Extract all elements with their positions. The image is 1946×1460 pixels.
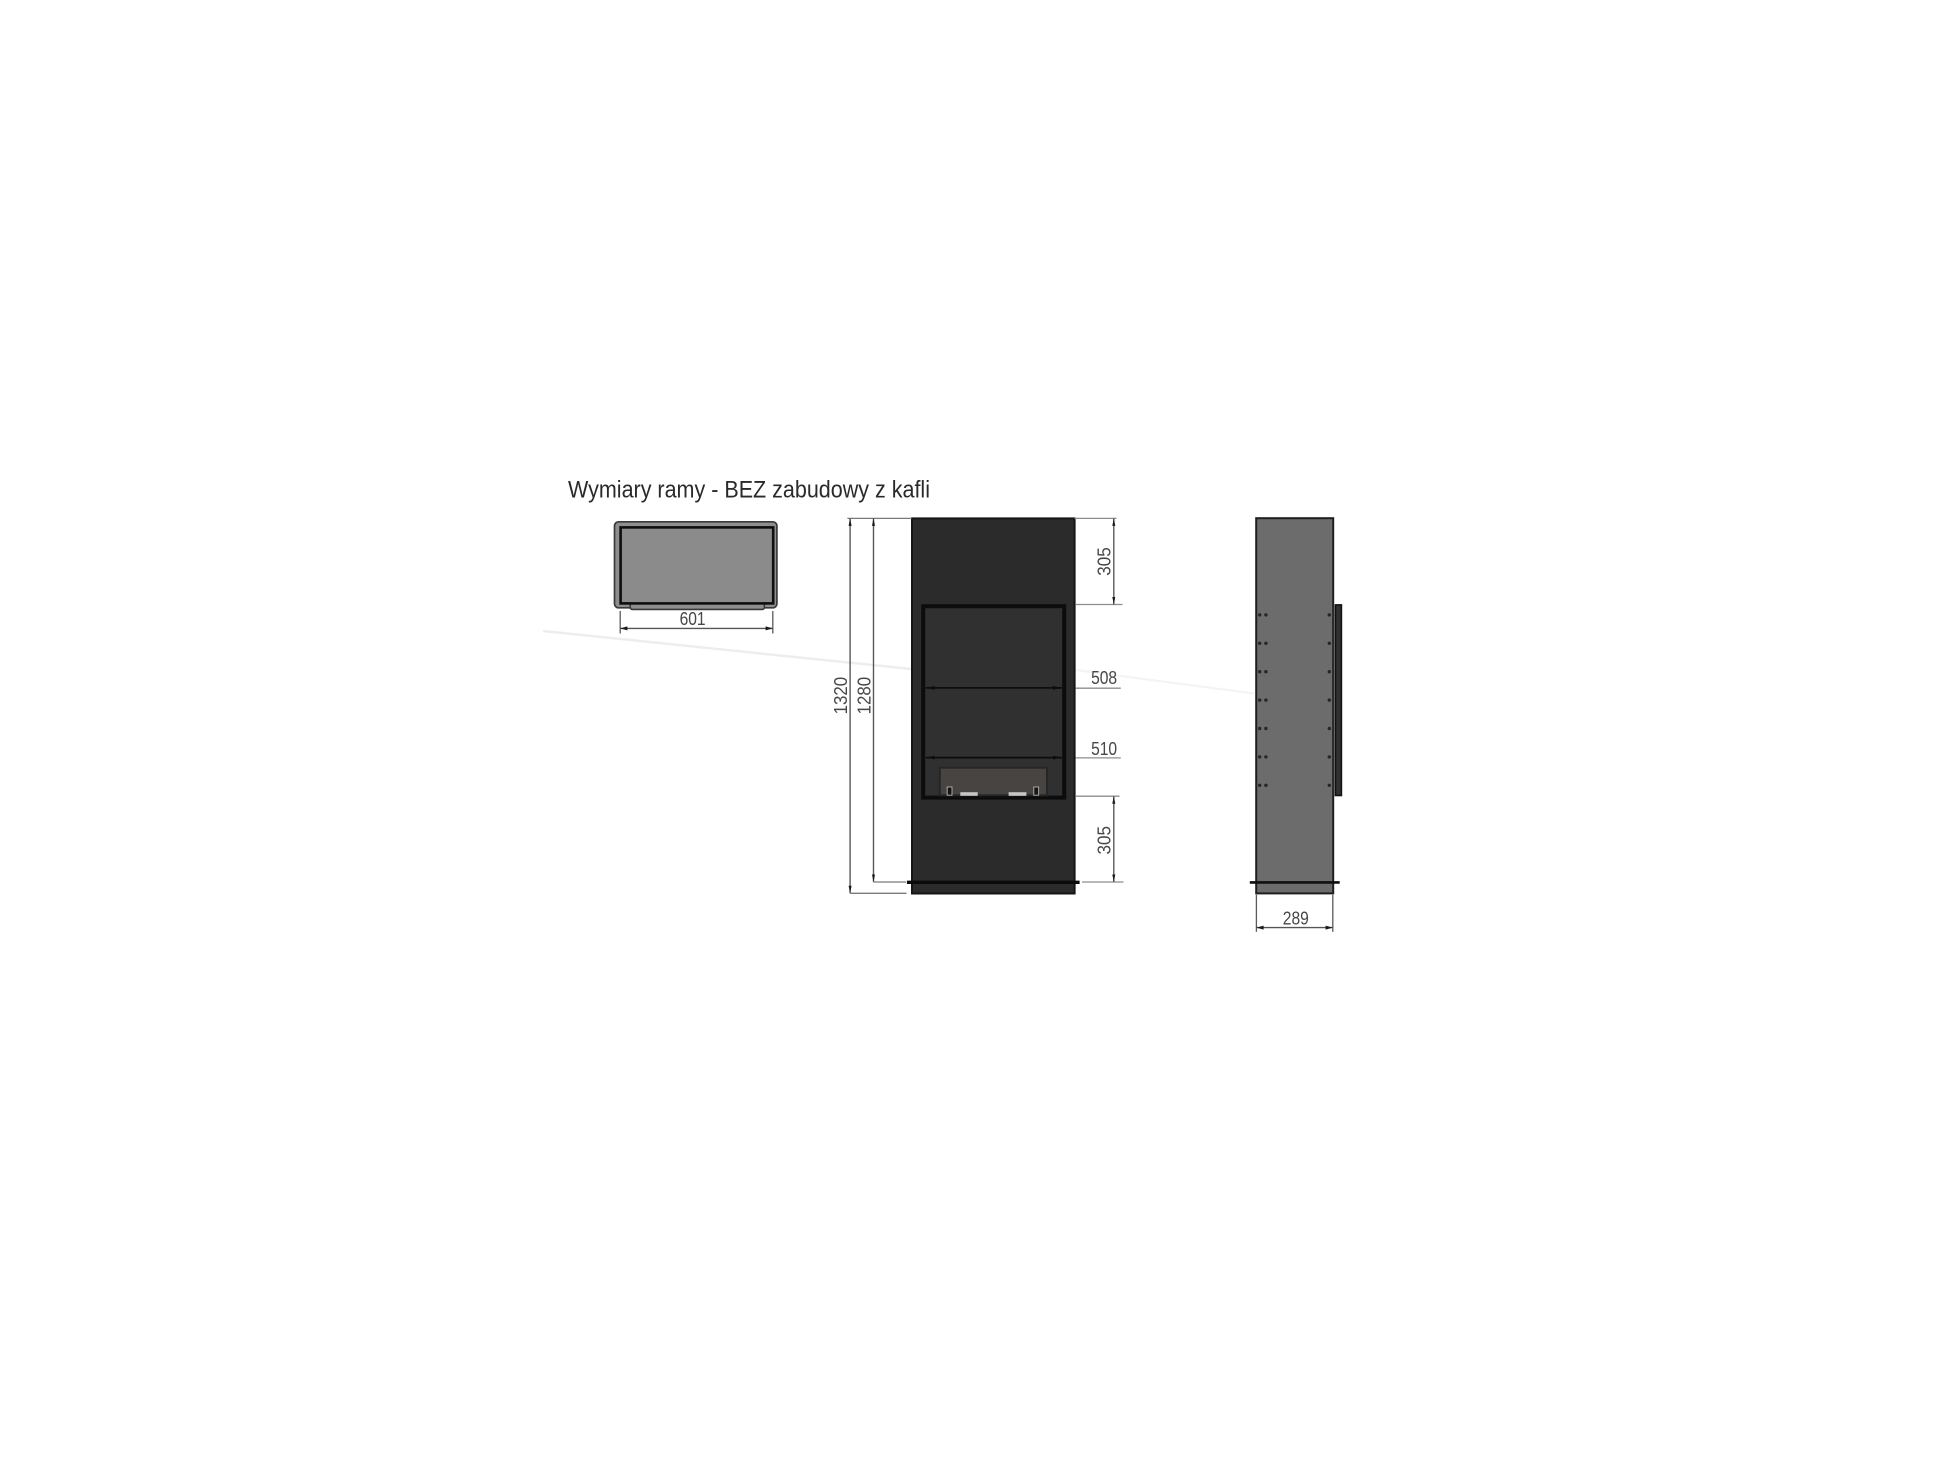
svg-text:289: 289 (1283, 908, 1309, 929)
svg-text:510: 510 (1091, 738, 1117, 759)
svg-text:Wymiary ramy - BEZ zabudowy z: Wymiary ramy - BEZ zabudowy z kafli (568, 476, 930, 503)
svg-text:305: 305 (1093, 826, 1114, 855)
svg-text:508: 508 (1091, 667, 1117, 688)
svg-text:1280: 1280 (853, 677, 874, 715)
svg-text:1320: 1320 (830, 677, 851, 715)
svg-text:305: 305 (1094, 547, 1115, 576)
svg-text:601: 601 (680, 608, 706, 629)
